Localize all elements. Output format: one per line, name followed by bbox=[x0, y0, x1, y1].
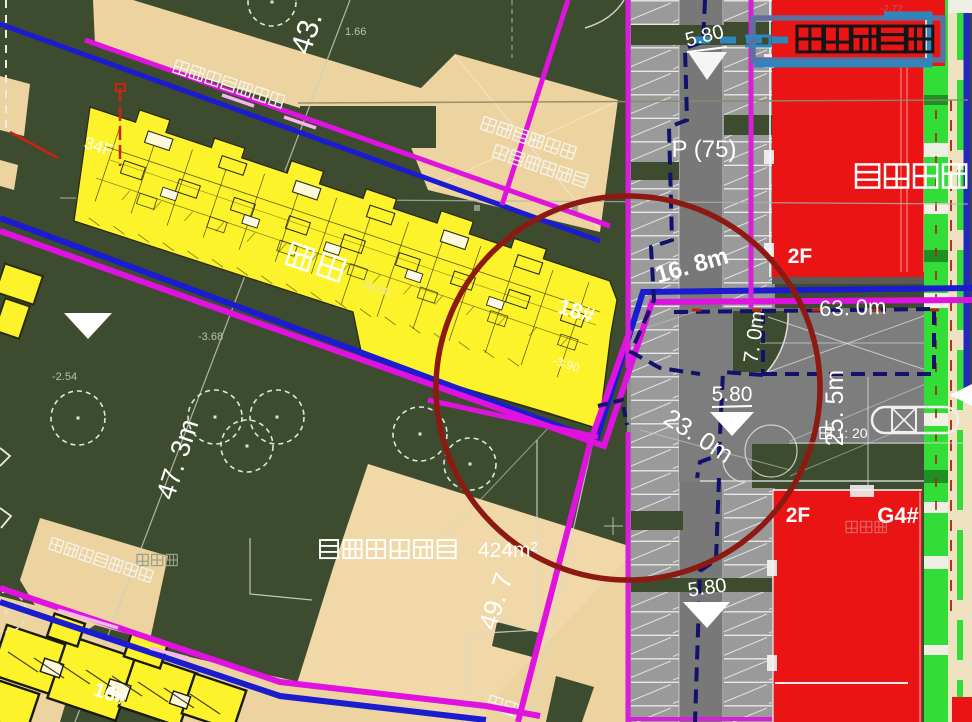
svg-text:P (75): P (75) bbox=[672, 136, 737, 163]
svg-text:G4#: G4# bbox=[877, 503, 919, 528]
svg-text:1: 20: 1: 20 bbox=[836, 425, 867, 441]
svg-text:5.80: 5.80 bbox=[712, 383, 753, 406]
svg-text:424m²: 424m² bbox=[478, 539, 538, 562]
svg-text:-2.72: -2.72 bbox=[880, 4, 903, 15]
svg-text:2F: 2F bbox=[788, 245, 813, 268]
svg-text:1.66: 1.66 bbox=[345, 26, 366, 38]
svg-text:2F: 2F bbox=[786, 504, 811, 527]
svg-text:-2.54: -2.54 bbox=[52, 371, 77, 383]
svg-text:-3.68: -3.68 bbox=[198, 331, 223, 343]
svg-text:63. 0m: 63. 0m bbox=[819, 294, 887, 321]
